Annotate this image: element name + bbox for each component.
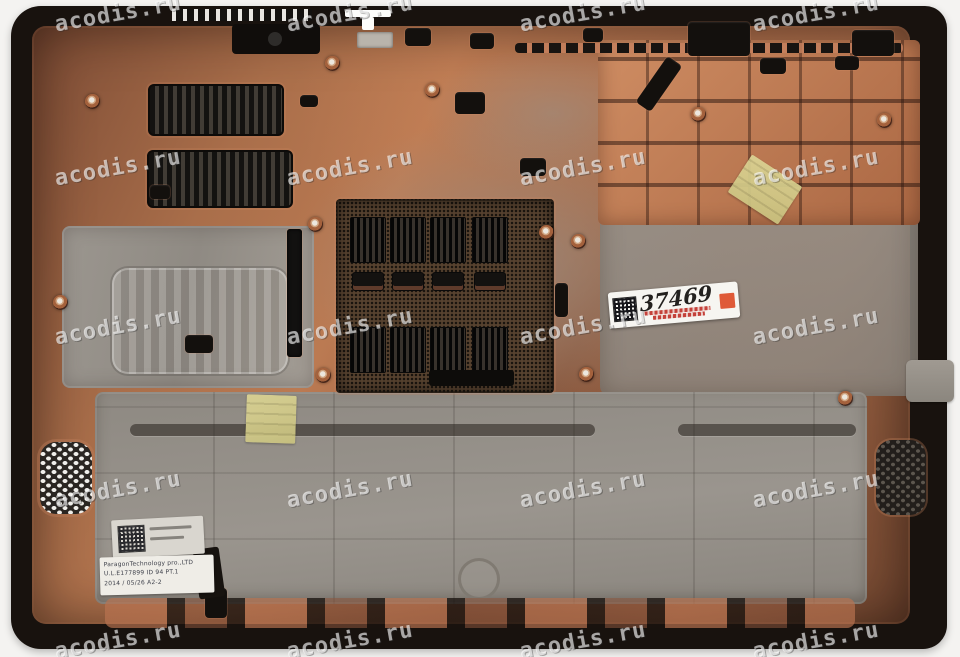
case-cutout [520, 158, 546, 176]
white-bracket-stem [362, 17, 374, 30]
barcode-label [111, 516, 205, 559]
kapton-tape-left [245, 394, 297, 444]
screw-boss [85, 94, 100, 109]
case-cutout [688, 22, 750, 56]
screw-boss [539, 225, 554, 240]
right-edge-tab [906, 360, 954, 402]
white-bracket-bar [345, 10, 391, 17]
vent-slot [472, 217, 508, 263]
docking-connector-slot [287, 229, 302, 357]
vent-slot-small [352, 272, 384, 291]
vent-slot [390, 327, 426, 373]
screw-boss [425, 83, 440, 98]
speaker-grille-right [876, 440, 926, 515]
barcode-label-textlines [149, 522, 198, 550]
screw-boss [838, 391, 853, 406]
qr-code [612, 296, 638, 322]
ribbed-vent-top [148, 84, 284, 136]
panel-ridge [130, 424, 595, 436]
vent-slot-small [474, 272, 506, 291]
manufacturer-label: ParagonTechnology pro.,LTD U.L.E177899 I… [100, 555, 215, 596]
datamatrix-code [117, 525, 145, 553]
sticker-middle: 37469 [639, 289, 715, 321]
case-cutout [455, 92, 485, 114]
product-photo: ParagonTechnology pro.,LTD U.L.E177899 I… [0, 0, 960, 657]
vent-slot [350, 217, 386, 263]
case-cutout [405, 28, 431, 46]
case-cutout [583, 28, 603, 42]
case-cutout [470, 33, 494, 49]
case-cutout [150, 185, 170, 199]
top-edge-vent-teeth [172, 9, 312, 21]
screw-boss [579, 367, 594, 382]
panel-circle-emboss [458, 558, 500, 600]
hinge-mount-hole [268, 32, 282, 46]
screw-boss [325, 56, 340, 71]
screw-boss [53, 295, 68, 310]
manufacturer-label-line3: 2014 / 05/26 A2-2 [104, 576, 210, 588]
case-cutout [760, 58, 786, 74]
case-cutout [852, 30, 894, 56]
screw-boss [877, 113, 892, 128]
vent-slot [430, 327, 466, 373]
vent-slot [472, 327, 508, 373]
screw-boss [691, 107, 706, 122]
screw-boss [316, 368, 331, 383]
case-cutout [555, 283, 568, 317]
small-silver-tag [357, 32, 393, 48]
sticker-orange-square [719, 292, 735, 308]
mesh-bottom-bar [429, 370, 514, 386]
ribbed-vent-bottom [147, 150, 293, 208]
panel-ridge [678, 424, 856, 436]
center-vent-mesh-panel [336, 199, 554, 393]
left-panel-embossed-area [112, 268, 288, 374]
vent-slot-small [392, 272, 424, 291]
vent-slot-small [432, 272, 464, 291]
case-cutout [185, 335, 213, 353]
screw-boss [308, 217, 323, 232]
screw-boss [571, 234, 586, 249]
vent-slot [390, 217, 426, 263]
vent-slot [350, 327, 386, 373]
vent-slot [430, 217, 466, 263]
case-cutout [300, 95, 318, 107]
speaker-grille-left [40, 442, 92, 514]
case-cutout [835, 56, 859, 70]
